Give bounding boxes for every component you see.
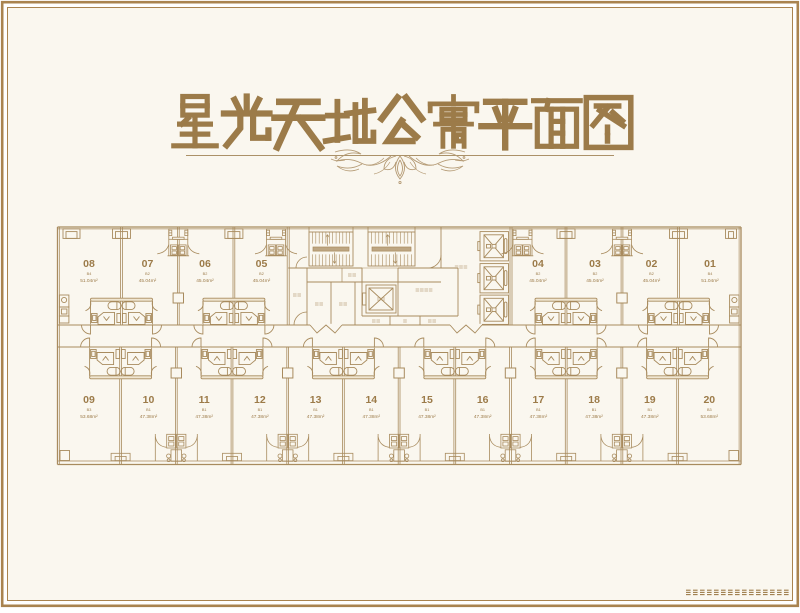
svg-text:12: 12 xyxy=(254,394,266,406)
svg-text:20: 20 xyxy=(703,394,715,406)
svg-text:B3: B3 xyxy=(87,408,92,412)
svg-text:B1: B1 xyxy=(480,408,485,412)
svg-text:45.04m²: 45.04m² xyxy=(586,278,604,284)
svg-text:B4: B4 xyxy=(87,272,92,276)
svg-text:B2: B2 xyxy=(145,272,150,276)
svg-text:02: 02 xyxy=(646,258,658,270)
svg-text:B2: B2 xyxy=(593,272,598,276)
svg-text:45.04m²: 45.04m² xyxy=(139,278,157,284)
svg-text:45.04m²: 45.04m² xyxy=(196,278,214,284)
svg-text:47.38m²: 47.38m² xyxy=(362,414,380,420)
svg-text:47.38m²: 47.38m² xyxy=(307,414,325,420)
svg-text:B2: B2 xyxy=(259,272,264,276)
svg-text:B3: B3 xyxy=(707,408,712,412)
svg-text:B1: B1 xyxy=(313,408,318,412)
svg-text:53.68m²: 53.68m² xyxy=(700,414,718,420)
svg-text:11: 11 xyxy=(199,394,210,406)
svg-text:47.38m²: 47.38m² xyxy=(474,414,492,420)
svg-text:B1: B1 xyxy=(425,408,430,412)
svg-text:B1: B1 xyxy=(536,408,541,412)
svg-text:B2: B2 xyxy=(649,272,654,276)
svg-text:B2: B2 xyxy=(203,272,208,276)
svg-text:45.04m²: 45.04m² xyxy=(253,278,271,284)
svg-text:51.04m²: 51.04m² xyxy=(80,278,98,284)
svg-text:14: 14 xyxy=(365,394,377,406)
svg-text:51.04m²: 51.04m² xyxy=(701,278,719,284)
svg-text:47.38m²: 47.38m² xyxy=(530,414,548,420)
svg-text:53.68m²: 53.68m² xyxy=(80,414,98,420)
svg-text:B1: B1 xyxy=(202,408,207,412)
svg-text:13: 13 xyxy=(310,394,322,406)
svg-text:03: 03 xyxy=(589,258,601,270)
svg-text:45.04m²: 45.04m² xyxy=(529,278,547,284)
svg-text:04: 04 xyxy=(532,258,544,270)
svg-text:47.38m²: 47.38m² xyxy=(140,414,158,420)
svg-text:B1: B1 xyxy=(258,408,263,412)
svg-text:B2: B2 xyxy=(536,272,541,276)
svg-text:19: 19 xyxy=(644,394,656,406)
svg-text:17: 17 xyxy=(533,394,545,406)
svg-text:06: 06 xyxy=(199,258,211,270)
svg-text:18: 18 xyxy=(588,394,600,406)
svg-text:B1: B1 xyxy=(592,408,597,412)
svg-text:47.38m²: 47.38m² xyxy=(641,414,659,420)
svg-text:B1: B1 xyxy=(647,408,652,412)
svg-text:B1: B1 xyxy=(369,408,374,412)
svg-text:47.38m²: 47.38m² xyxy=(418,414,436,420)
svg-text:B1: B1 xyxy=(146,408,151,412)
svg-text:07: 07 xyxy=(142,258,154,270)
svg-text:47.38m²: 47.38m² xyxy=(251,414,269,420)
svg-text:15: 15 xyxy=(421,394,433,406)
svg-text:09: 09 xyxy=(83,394,95,406)
svg-text:05: 05 xyxy=(256,258,268,270)
svg-text:45.04m²: 45.04m² xyxy=(643,278,661,284)
svg-text:01: 01 xyxy=(704,258,716,270)
svg-text:10: 10 xyxy=(143,394,155,406)
svg-text:16: 16 xyxy=(477,394,489,406)
svg-text:B4: B4 xyxy=(708,272,713,276)
svg-text:47.38m²: 47.38m² xyxy=(195,414,213,420)
svg-text:08: 08 xyxy=(83,258,95,270)
svg-text:47.38m²: 47.38m² xyxy=(585,414,603,420)
